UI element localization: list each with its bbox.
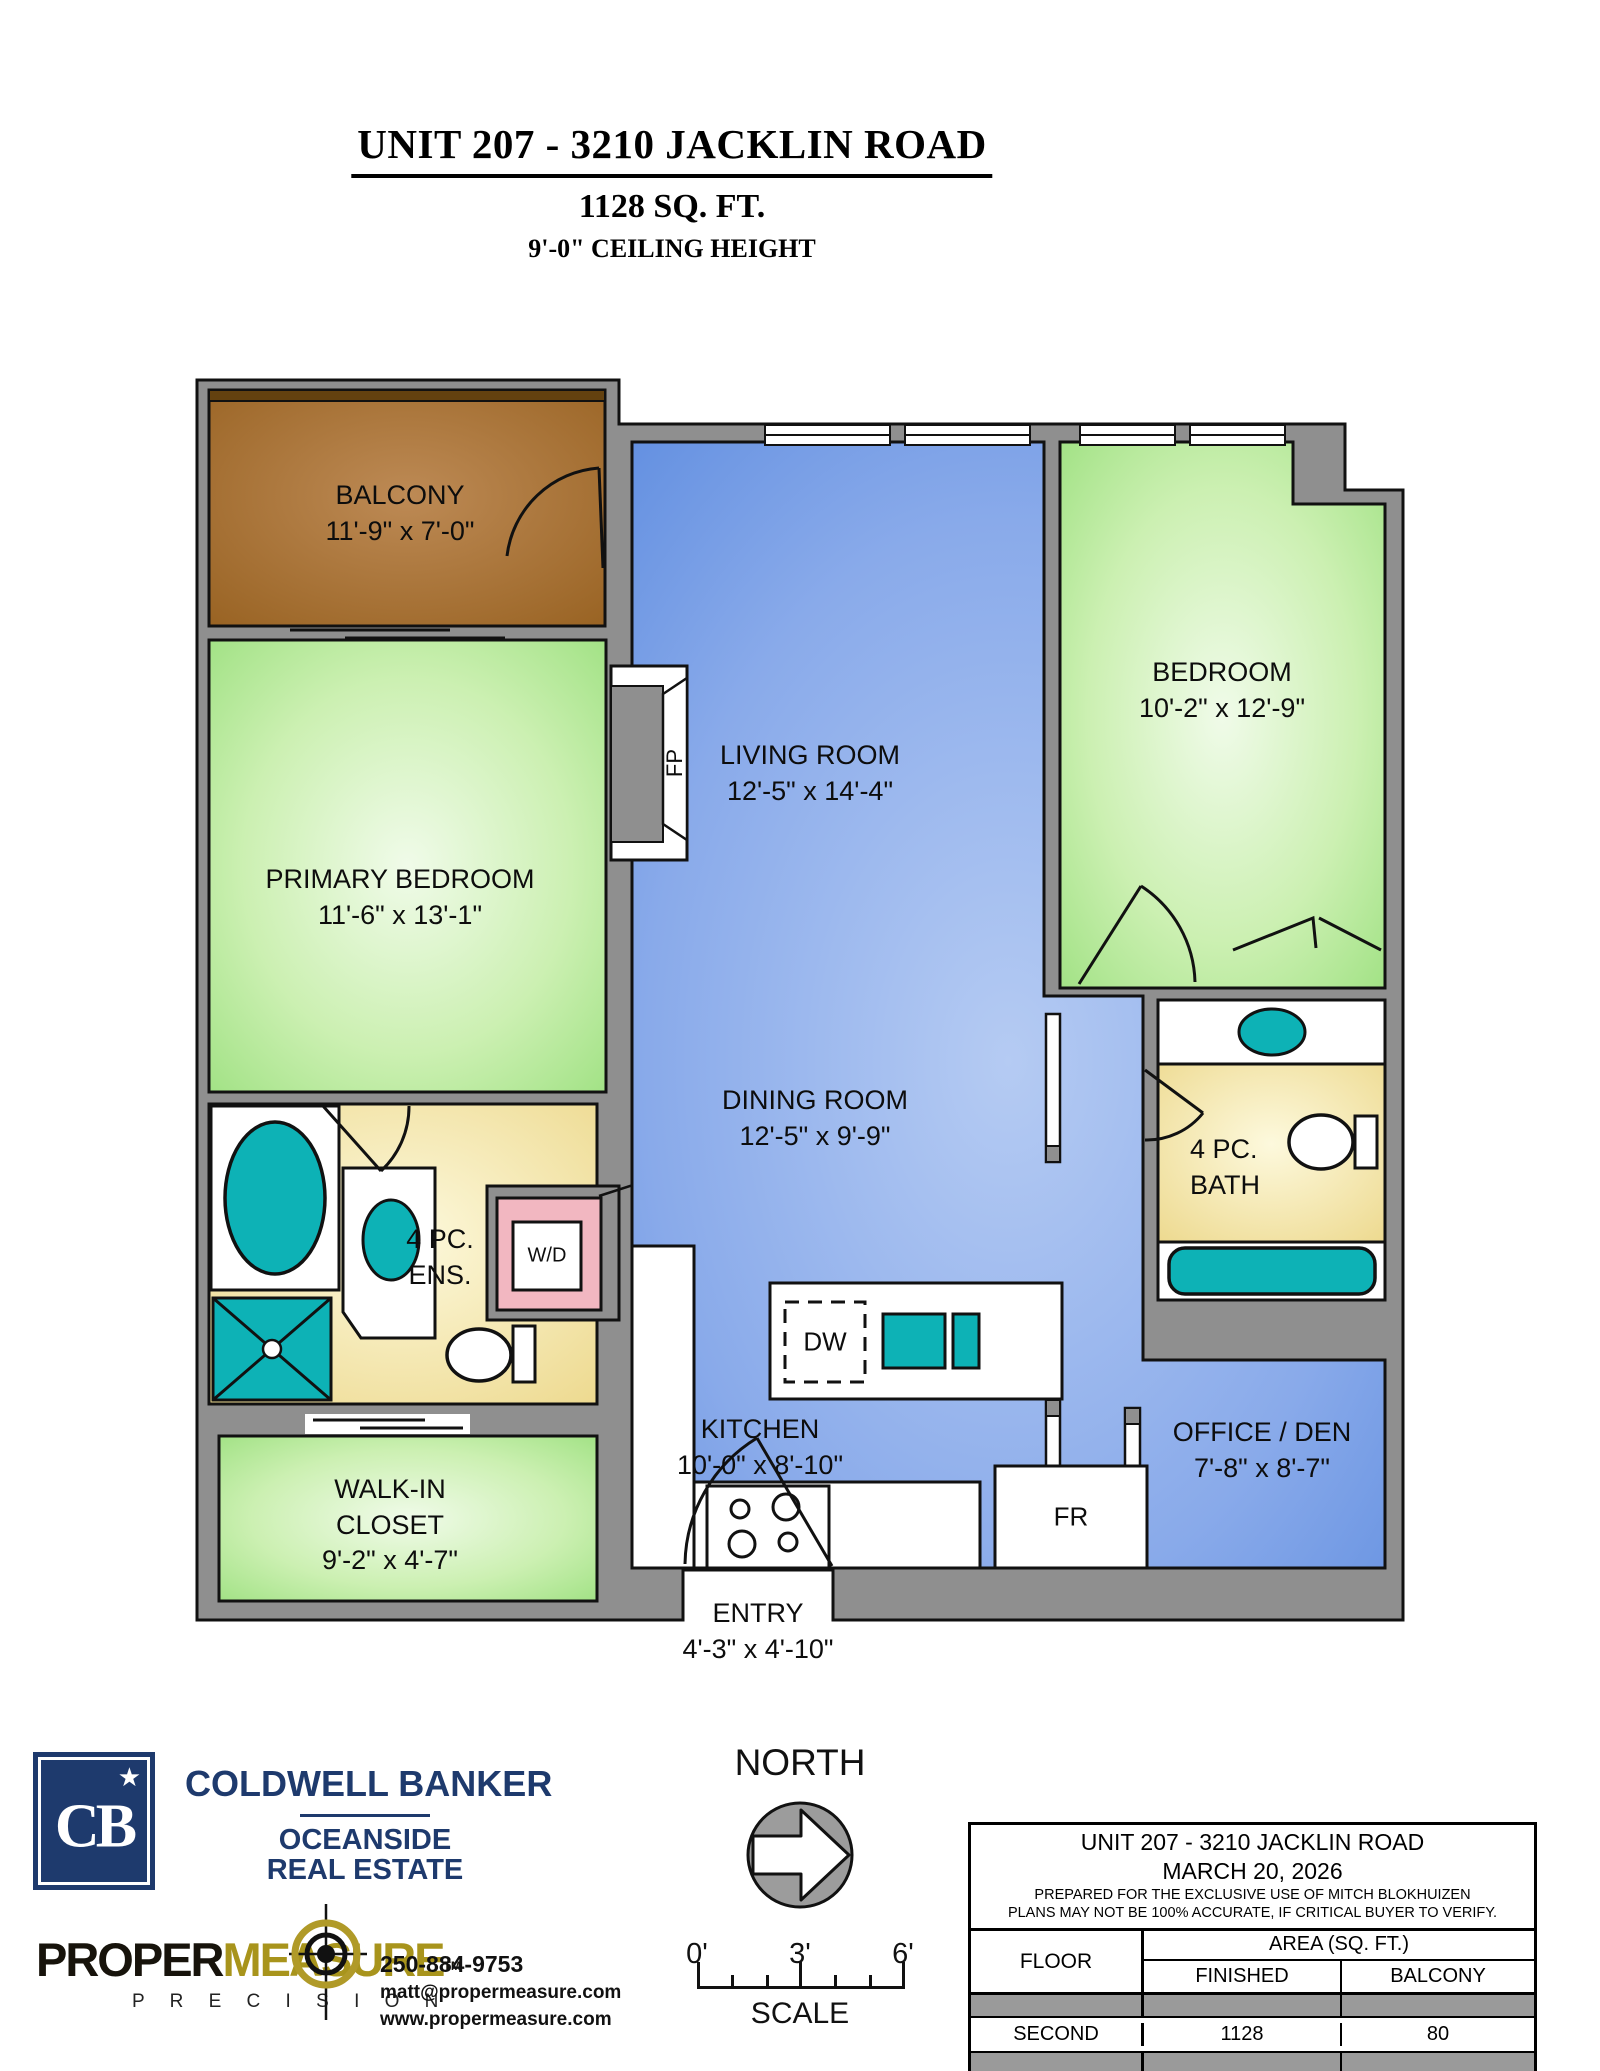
- entry-label: ENTRY4'-3" x 4'-10": [682, 1596, 833, 1667]
- kitchen-sink-small: [953, 1314, 979, 1368]
- ensuite-toilet: [447, 1326, 535, 1382]
- scale-label: SCALE: [751, 1997, 849, 2031]
- ruler-tick: [834, 1975, 837, 1988]
- fridge-label: FR: [1054, 1502, 1089, 1533]
- ensuite-bathtub: [225, 1122, 325, 1274]
- col-header-area: AREA (SQ. FT.): [1144, 1931, 1534, 1961]
- table-spacer-row: [971, 1995, 1534, 2018]
- table-row: SECOND 1128 80: [971, 2018, 1534, 2053]
- plan-title-block: UNIT 207 - 3210 JACKLIN ROAD 1128 SQ. FT…: [351, 120, 992, 264]
- dining-room-label: DINING ROOM12'-5" x 9'-9": [722, 1083, 908, 1154]
- office-den-label: OFFICE / DEN7'-8" x 8'-7": [1173, 1415, 1352, 1486]
- email-address: matt@propermeasure.com: [380, 1980, 621, 2007]
- ruler-tick: [902, 1962, 905, 1988]
- kitchen-counter-left: [632, 1246, 694, 1568]
- divider-rule: [300, 1814, 430, 1817]
- bath-sink: [1239, 1009, 1305, 1055]
- floor-plan-page: UNIT 207 - 3210 JACKLIN ROAD 1128 SQ. FT…: [0, 0, 1600, 2071]
- walk-in-closet-label: WALK-IN CLOSET9'-2" x 4'-7": [290, 1472, 490, 1579]
- bath-tub: [1169, 1248, 1375, 1294]
- windows: [765, 425, 1285, 445]
- info-table-header: UNIT 207 - 3210 JACKLIN ROAD MARCH 20, 2…: [971, 1825, 1534, 1931]
- ruler-tick: [869, 1975, 872, 1988]
- col-header-finished: FINISHED: [1144, 1961, 1342, 1992]
- info-table: UNIT 207 - 3210 JACKLIN ROAD MARCH 20, 2…: [968, 1822, 1537, 2071]
- ruler-tick: [731, 1975, 734, 1988]
- ceiling-height: 9'-0" CEILING HEIGHT: [351, 234, 992, 264]
- cell-finished: 1128: [1144, 2023, 1342, 2046]
- unit-address-title: UNIT 207 - 3210 JACKLIN ROAD: [351, 120, 992, 178]
- ensuite-shower: [213, 1298, 331, 1400]
- square-footage: 1128 SQ. FT.: [351, 188, 992, 226]
- bath-label: 4 PC. BATH: [1190, 1132, 1310, 1203]
- north-label: NORTH: [735, 1742, 866, 1784]
- coldwell-banker-wordmark: COLDWELL BANKER OCEANSIDE REAL ESTATE: [185, 1763, 545, 1886]
- table-spacer-row: [971, 2053, 1534, 2071]
- propermeasure-word1: PROPER: [36, 1933, 223, 1986]
- table-note-2: PLANS MAY NOT BE 100% ACCURATE, IF CRITI…: [973, 1904, 1532, 1923]
- bedroom-label: BEDROOM10'-2" x 12'-9": [1139, 655, 1305, 726]
- north-arrow-icon: [745, 1800, 855, 1910]
- primary-bedroom-label: PRIMARY BEDROOM11'-6" x 13'-1": [265, 862, 534, 933]
- ruler-tick: [697, 1962, 700, 1988]
- ensuite-label: 4 PC. ENS.: [380, 1222, 500, 1293]
- cb-star-icon: ★: [118, 1762, 141, 1793]
- oceanside-line: OCEANSIDE: [185, 1825, 545, 1855]
- coldwell-banker-name: COLDWELL BANKER: [185, 1763, 545, 1805]
- cell-floor: SECOND: [971, 2023, 1144, 2046]
- phone-number: 250-884-9753: [380, 1948, 621, 1980]
- fireplace-label: FP: [662, 749, 688, 777]
- propermeasure-contact: 250-884-9753 matt@propermeasure.com www.…: [380, 1948, 621, 2033]
- ruler-tick: [799, 1962, 802, 1988]
- living-room-label: LIVING ROOM12'-5" x 14'-4": [720, 738, 900, 809]
- crosshair-target-icon: [283, 1902, 369, 2022]
- col-header-floor: FLOOR: [971, 1931, 1144, 1992]
- cell-balcony: 80: [1342, 2023, 1534, 2046]
- col-header-balcony: BALCONY: [1342, 1961, 1534, 1992]
- table-date: MARCH 20, 2026: [973, 1857, 1532, 1886]
- table-note-1: PREPARED FOR THE EXCLUSIVE USE OF MITCH …: [973, 1886, 1532, 1905]
- info-table-columns: FLOOR AREA (SQ. FT.) FINISHED BALCONY: [971, 1931, 1534, 1995]
- real-estate-line: REAL ESTATE: [185, 1855, 545, 1885]
- dishwasher-label: DW: [803, 1327, 846, 1358]
- balcony-label: BALCONY11'-9" x 7'-0": [325, 478, 474, 549]
- washer-dryer-label: W/D: [528, 1245, 567, 1268]
- cb-monogram: CB: [55, 1791, 133, 1862]
- table-title: UNIT 207 - 3210 JACKLIN ROAD: [973, 1828, 1532, 1857]
- kitchen-label: KITCHEN10'-0" x 8'-10": [677, 1412, 843, 1483]
- coldwell-banker-logo: CB ★: [33, 1752, 155, 1890]
- website-url: www.propermeasure.com: [380, 2007, 621, 2034]
- ruler-tick: [766, 1975, 769, 1988]
- kitchen-sink-main: [883, 1314, 945, 1368]
